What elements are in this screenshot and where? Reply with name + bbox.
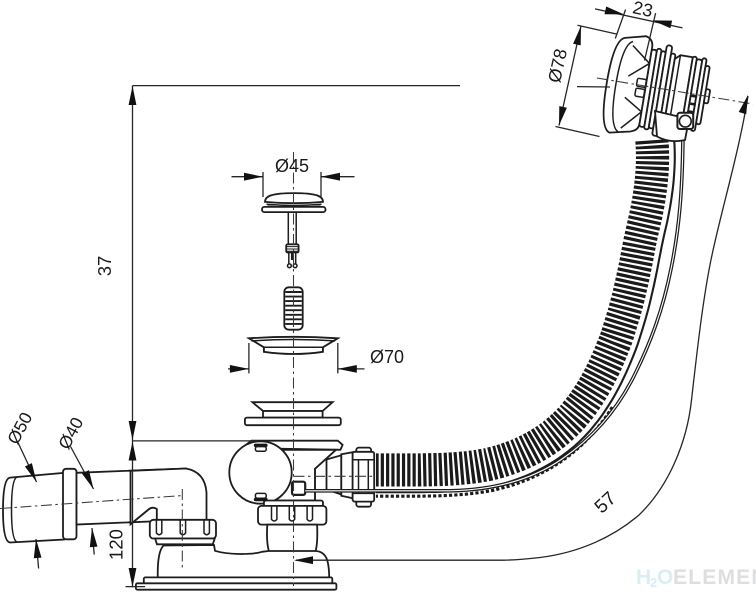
svg-text:37: 37 xyxy=(94,256,115,277)
svg-text:Ø45: Ø45 xyxy=(275,156,309,176)
svg-text:O: O xyxy=(657,566,673,589)
svg-text:ELEMENT: ELEMENT xyxy=(673,566,756,589)
svg-text:Ø70: Ø70 xyxy=(370,347,404,367)
svg-text:Ø40: Ø40 xyxy=(54,414,87,453)
svg-text:Ø78: Ø78 xyxy=(544,47,571,85)
svg-text:120: 120 xyxy=(106,529,127,560)
svg-text:Ø50: Ø50 xyxy=(3,409,36,448)
svg-text:H: H xyxy=(636,566,651,589)
svg-text:57: 57 xyxy=(591,488,621,518)
